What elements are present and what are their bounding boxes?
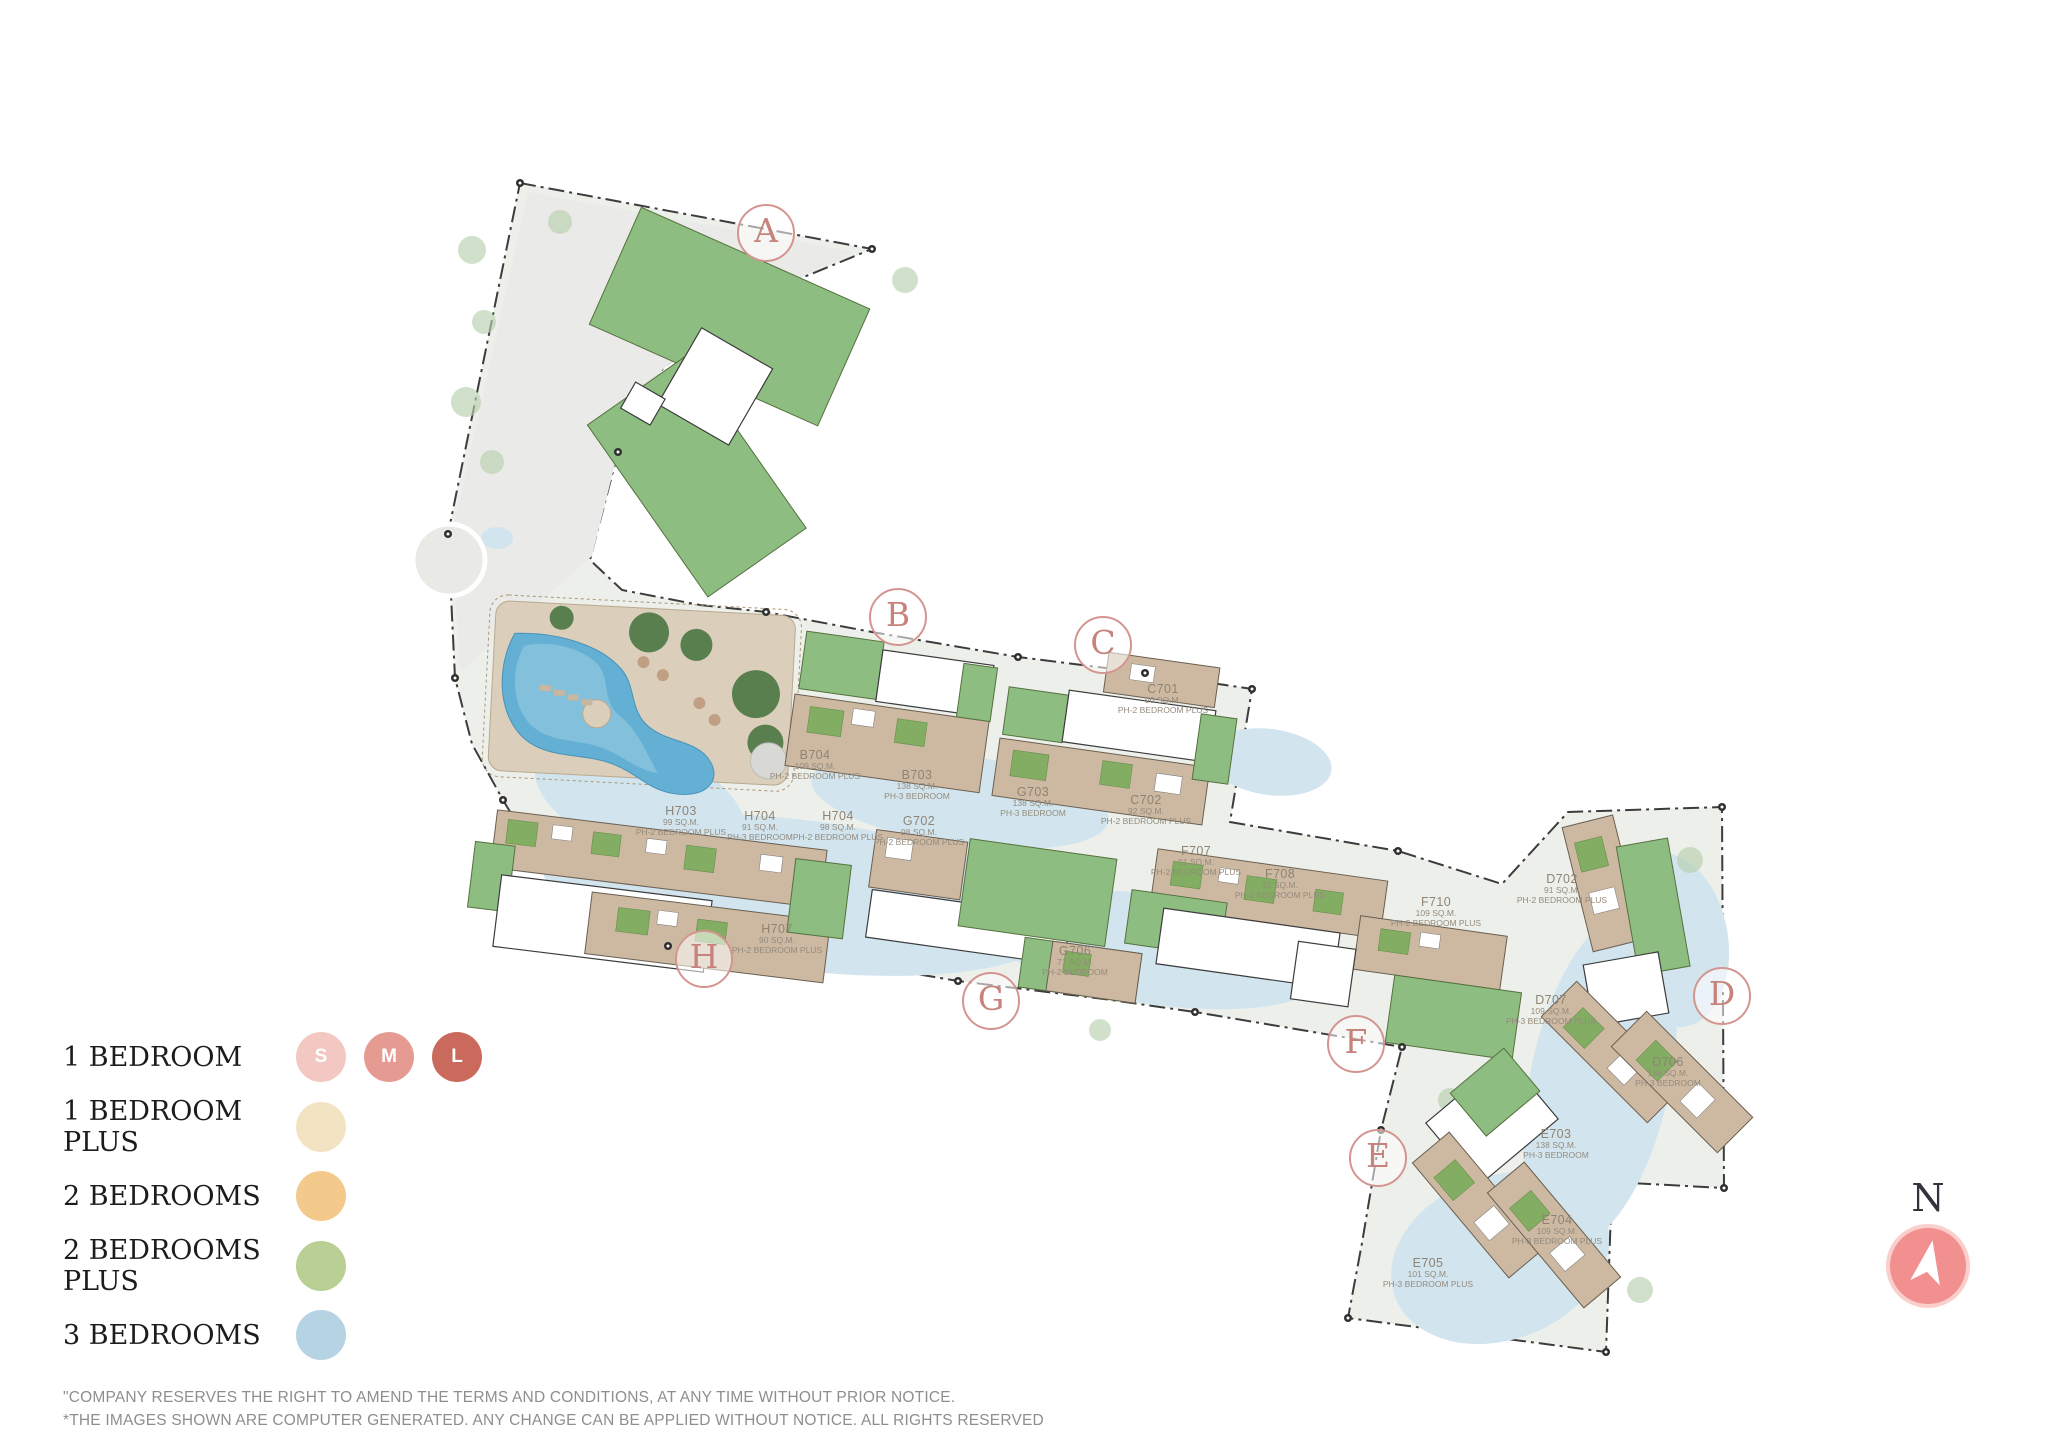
legend-swatch-s: S <box>296 1032 346 1082</box>
unit-code: F710 <box>1374 895 1498 909</box>
compass-north-label: N <box>1878 1178 1978 1218</box>
legend-row-3: 2 BEDROOMS PLUS <box>63 1241 482 1291</box>
legend-swatches <box>296 1310 346 1360</box>
unit-code: F707 <box>1134 844 1258 858</box>
unit-label-f710: F710109 SQ.M.PH-2 BEDROOM PLUS <box>1374 895 1498 929</box>
legend-swatch-m: M <box>364 1032 414 1082</box>
unit-utype: PH-2 BEDROOM PLUS <box>1084 817 1208 827</box>
unit-code: B704 <box>753 748 877 762</box>
unit-code: E703 <box>1494 1127 1618 1141</box>
unit-label-h707: H70790 SQ.M.PH-2 BEDROOM PLUS <box>715 922 839 956</box>
legend-swatch <box>296 1310 346 1360</box>
legend-row-0: 1 BEDROOMSML <box>63 1032 482 1082</box>
legend-swatches <box>296 1171 346 1221</box>
legend-label: 2 BEDROOMS <box>63 1181 296 1212</box>
legend-row-1: 1 BEDROOM PLUS <box>63 1102 482 1152</box>
legend-swatch <box>296 1171 346 1221</box>
unit-label-g702: G70298 SQ.M.PH-2 BEDROOM PLUS <box>857 814 981 848</box>
block-marker-d[interactable]: D <box>1693 967 1751 1025</box>
unit-code: G702 <box>857 814 981 828</box>
legend-swatch <box>296 1241 346 1291</box>
unit-utype: PH-2 BEDROOM PLUS <box>1374 919 1498 929</box>
unit-utype: PH-2 BEDROOM PLUS <box>1500 896 1624 906</box>
unit-code: D706 <box>1606 1055 1730 1069</box>
disclaimer-line-2: *THE IMAGES SHOWN ARE COMPUTER GENERATED… <box>63 1409 1044 1432</box>
unit-code: G703 <box>971 785 1095 799</box>
unit-label-e703: E703138 SQ.M.PH-3 BEDROOM <box>1494 1127 1618 1161</box>
unit-utype: PH-3 BEDROOM PLUS <box>1495 1237 1619 1247</box>
unit-utype: PH-3 BEDROOM PLUS <box>1489 1017 1613 1027</box>
unit-code: B703 <box>855 768 979 782</box>
block-marker-a[interactable]: A <box>737 204 795 262</box>
unit-code: C701 <box>1101 682 1225 696</box>
disclaimer: "COMPANY RESERVES THE RIGHT TO AMEND THE… <box>63 1386 1044 1432</box>
unit-label-b703: B703138 SQ.M.PH-3 BEDROOM <box>855 768 979 802</box>
block-marker-b[interactable]: B <box>869 588 927 646</box>
unit-label-e704: E704109 SQ.M.PH-3 BEDROOM PLUS <box>1495 1213 1619 1247</box>
unit-code: C702 <box>1084 793 1208 807</box>
block-marker-h[interactable]: H <box>675 930 733 988</box>
unit-code: D702 <box>1500 872 1624 886</box>
legend-swatches <box>296 1102 346 1152</box>
unit-utype: PH-2 BEDROOM PLUS <box>857 838 981 848</box>
unit-label-g706: G70671 SQ.M.PH-2 BEDROOM <box>1013 944 1137 978</box>
legend: 1 BEDROOMSML1 BEDROOM PLUS2 BEDROOMS2 BE… <box>63 1032 482 1380</box>
block-marker-e[interactable]: E <box>1349 1129 1407 1187</box>
unit-label-d707: D707109 SQ.M.PH-3 BEDROOM PLUS <box>1489 993 1613 1027</box>
unit-utype: PH-3 BEDROOM <box>855 792 979 802</box>
legend-swatch <box>296 1102 346 1152</box>
unit-label-c702: C70292 SQ.M.PH-2 BEDROOM PLUS <box>1084 793 1208 827</box>
unit-code: F708 <box>1218 867 1342 881</box>
unit-utype: PH-2 BEDROOM PLUS <box>1101 706 1225 716</box>
north-arrow-icon <box>1884 1222 1972 1310</box>
unit-utype: PH-3 BEDROOM <box>971 809 1095 819</box>
block-marker-f[interactable]: F <box>1327 1015 1385 1073</box>
unit-label-f708: F70891 SQ.M.PH-2 BEDROOM PLUS <box>1218 867 1342 901</box>
legend-label: 3 BEDROOMS <box>63 1320 296 1351</box>
unit-utype: PH-2 BEDROOM PLUS <box>715 946 839 956</box>
legend-row-2: 2 BEDROOMS <box>63 1171 482 1221</box>
master-plan-page: B704109 SQ.M.PH-2 BEDROOM PLUSB703138 SQ… <box>0 0 2048 1448</box>
legend-swatch-l: L <box>432 1032 482 1082</box>
unit-code: G706 <box>1013 944 1137 958</box>
disclaimer-line-1: "COMPANY RESERVES THE RIGHT TO AMEND THE… <box>63 1386 1044 1409</box>
legend-label: 2 BEDROOMS PLUS <box>63 1235 296 1297</box>
unit-code: H707 <box>715 922 839 936</box>
block-marker-g[interactable]: G <box>962 972 1020 1030</box>
unit-code: E705 <box>1366 1256 1490 1270</box>
unit-code: E704 <box>1495 1213 1619 1227</box>
legend-label: 1 BEDROOM <box>63 1042 296 1073</box>
unit-label-d702: D70291 SQ.M.PH-2 BEDROOM PLUS <box>1500 872 1624 906</box>
legend-swatches: SML <box>296 1032 482 1082</box>
unit-label-g703: G703138 SQ.M.PH-3 BEDROOM <box>971 785 1095 819</box>
unit-utype: PH-3 BEDROOM PLUS <box>1366 1280 1490 1290</box>
compass: N <box>1878 1178 1978 1310</box>
unit-utype: PH-2 BEDROOM <box>1013 968 1137 978</box>
unit-utype: PH-2 BEDROOM PLUS <box>1218 891 1342 901</box>
unit-utype: PH-3 BEDROOM <box>1494 1151 1618 1161</box>
legend-row-4: 3 BEDROOMS <box>63 1310 482 1360</box>
legend-label: 1 BEDROOM PLUS <box>63 1096 296 1158</box>
legend-swatches <box>296 1241 346 1291</box>
unit-label-c701: C70190 SQ.M.PH-2 BEDROOM PLUS <box>1101 682 1225 716</box>
unit-code: D707 <box>1489 993 1613 1007</box>
unit-label-d706: D706138 SQ.M.PH-3 BEDROOM <box>1606 1055 1730 1089</box>
unit-utype: PH-3 BEDROOM <box>1606 1079 1730 1089</box>
unit-label-e705: E705101 SQ.M.PH-3 BEDROOM PLUS <box>1366 1256 1490 1290</box>
block-marker-c[interactable]: C <box>1074 616 1132 674</box>
